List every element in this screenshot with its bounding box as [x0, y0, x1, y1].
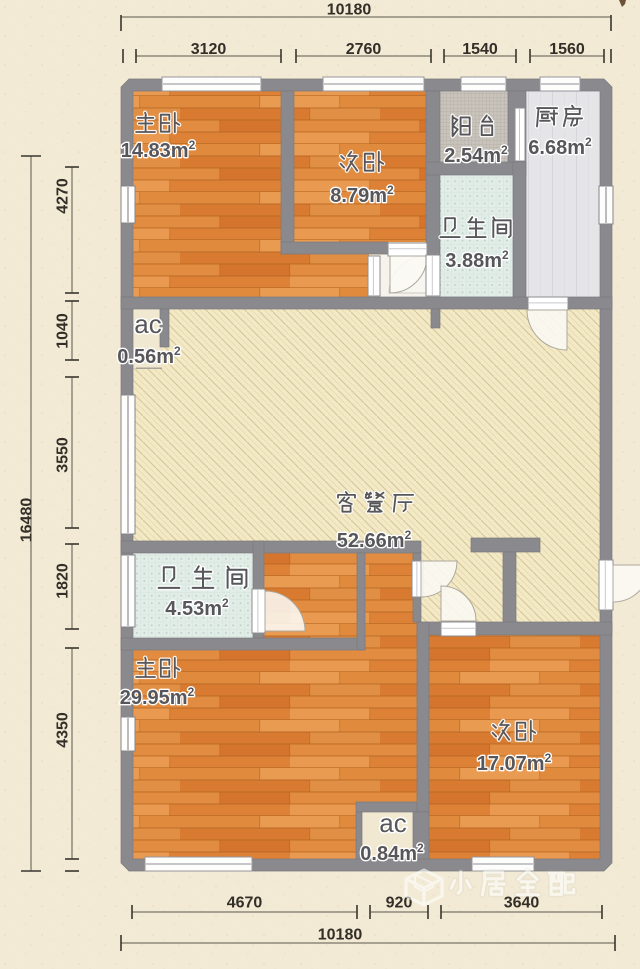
svg-text:29.95m2: 29.95m2 [120, 685, 195, 709]
svg-text:17.07m2: 17.07m2 [477, 751, 552, 775]
svg-text:6.68m2: 6.68m2 [528, 135, 592, 159]
svg-text:10180: 10180 [318, 926, 363, 943]
svg-text:14.83m2: 14.83m2 [121, 138, 196, 162]
svg-text:1040: 1040 [54, 313, 71, 349]
svg-text:1540: 1540 [462, 41, 498, 58]
svg-text:1820: 1820 [54, 563, 71, 599]
svg-text:2760: 2760 [346, 41, 382, 58]
svg-text:3550: 3550 [54, 437, 71, 473]
svg-text:4.53m2: 4.53m2 [165, 596, 229, 620]
svg-text:52.66m2: 52.66m2 [337, 528, 412, 552]
svg-text:3120: 3120 [191, 41, 227, 58]
svg-text:0.84m2: 0.84m2 [360, 841, 424, 865]
svg-text:ac: ac [134, 309, 161, 339]
svg-text:4270: 4270 [54, 178, 71, 214]
svg-text:1560: 1560 [549, 41, 585, 58]
svg-text:2.54m2: 2.54m2 [444, 143, 508, 167]
svg-text:4670: 4670 [227, 894, 263, 911]
svg-text:16480: 16480 [18, 498, 35, 543]
svg-text:10180: 10180 [327, 1, 372, 18]
svg-text:ac: ac [379, 808, 406, 838]
svg-text:8.79m2: 8.79m2 [330, 183, 394, 207]
svg-text:0.56m2: 0.56m2 [117, 344, 181, 368]
svg-text:4350: 4350 [54, 712, 71, 748]
svg-text:3.88m2: 3.88m2 [445, 248, 509, 272]
